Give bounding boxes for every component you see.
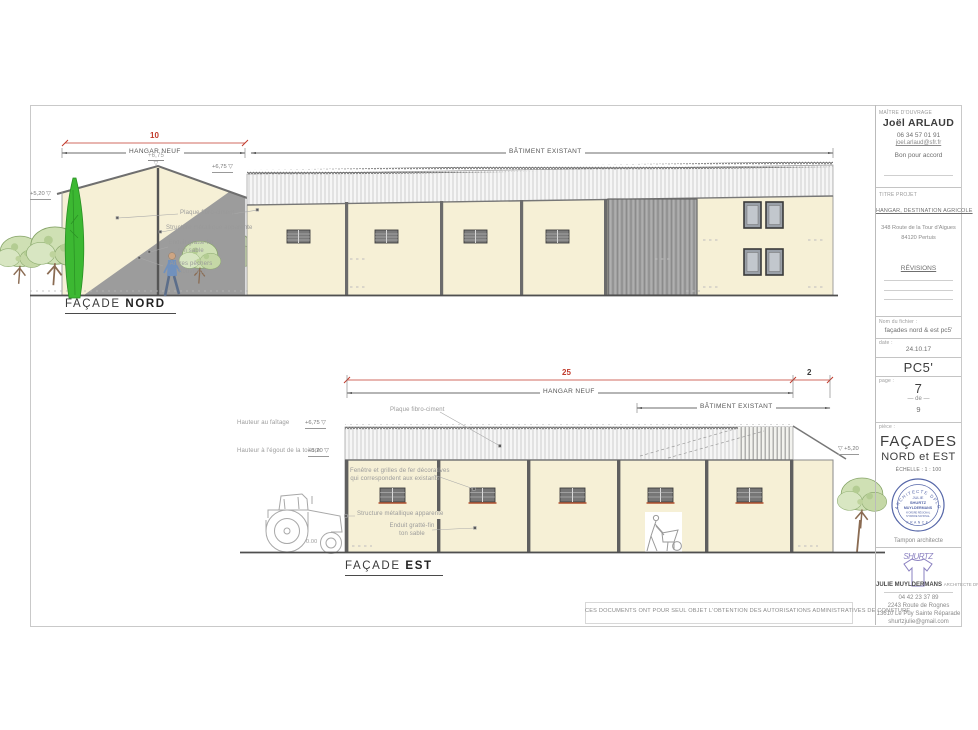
level-symbol: ▽ bbox=[324, 448, 328, 454]
stamp-line-2: SHURTZ bbox=[910, 500, 927, 505]
accord-label: Bon pour accord bbox=[876, 152, 961, 160]
facade-nord-title: FAÇADE NORD bbox=[65, 297, 176, 314]
level-right-est: ▽ +5,20 bbox=[838, 446, 859, 455]
maitre-ouvrage-label: MAÎTRE D'OUVRAGE bbox=[876, 110, 964, 116]
piece-title-1: FAÇADES bbox=[876, 433, 961, 452]
client-email: joel.arlaud@sfr.fr bbox=[876, 140, 961, 148]
batiment-existant-nord bbox=[247, 161, 833, 295]
fichier-value: façades nord & est pc5' bbox=[876, 327, 961, 335]
dim-25: 25 bbox=[560, 368, 573, 378]
signature-line bbox=[884, 175, 953, 176]
project-address-1: 348 Route de la Tour d'Aigues bbox=[876, 225, 961, 232]
level-symbol: ▽ bbox=[228, 164, 232, 170]
note-plaque-est: Plaque fibro-ciment bbox=[390, 407, 445, 415]
revisions-label: RÉVISIONS bbox=[876, 265, 961, 273]
note-enduit-nord: Enduit gratté-finton sable bbox=[160, 240, 222, 255]
echelle: ÉCHELLE : 1 : 100 bbox=[876, 467, 961, 473]
date-value: 24.10.17 bbox=[876, 346, 961, 354]
architect-phone: 04 42 23 37 89 bbox=[876, 595, 961, 603]
project-title: HANGAR, DESTINATION AGRICOLE bbox=[876, 208, 961, 215]
level-left-nord: +5,20 ▽ bbox=[30, 191, 51, 200]
level-symbol: ▽ bbox=[321, 420, 325, 426]
metal-slat-door bbox=[608, 199, 697, 295]
architect-address-2: 13610 Le Puy Sainte Réparade bbox=[876, 611, 961, 619]
architect-email: shurtzjulie@gmail.com bbox=[876, 619, 961, 627]
drawing-sheet: 10 HANGAR NEUF BÂTIMENT EXISTANT +6,75 ▽… bbox=[0, 0, 978, 730]
stamp-arc-bottom: FRANCE bbox=[907, 521, 930, 525]
note-arbres-nord: Arbres pêchers(nouveau) bbox=[160, 261, 222, 276]
stamp-line-3: MUYLDERMANS bbox=[904, 506, 933, 510]
facade-nord-drawing bbox=[0, 140, 838, 298]
page-total: 9 bbox=[876, 405, 961, 414]
architect-stamp: ARCHITECTE DPLG JULIE SHURTZ MUYLDERMANS… bbox=[876, 475, 961, 537]
dim-batiment-existant-nord: BÂTIMENT EXISTANT bbox=[506, 148, 585, 156]
note-structure-nord: Structure métallique apparente bbox=[166, 225, 253, 233]
page-de: — de — bbox=[876, 396, 961, 404]
note-structure-est: Structure métallique apparente bbox=[355, 511, 446, 519]
label-faitage: Hauteur au faîtage bbox=[237, 420, 289, 428]
tractor bbox=[266, 494, 342, 554]
stamp-line-5: N°ORDRE NATIONAL bbox=[906, 515, 930, 518]
note-enduit-est: Enduit gratté-finton sable bbox=[382, 523, 442, 538]
tampon-caption: Tampon architecte bbox=[876, 538, 961, 546]
note-plaque-nord: Plaque fibro-ciment bbox=[180, 210, 235, 218]
client-name: Joël ARLAUD bbox=[876, 117, 961, 130]
project-address-2: 84120 Pertuis bbox=[876, 235, 961, 242]
piece-title-2: NORD et EST bbox=[876, 451, 961, 465]
est-roof-band bbox=[345, 427, 793, 460]
title-block: MAÎTRE D'OUVRAGE Joël ARLAUD 06 34 57 01… bbox=[875, 105, 961, 625]
architect-name-row: JULIE MUYLDERMANS ARCHITECTE DPLG bbox=[876, 582, 961, 590]
dim-2: 2 bbox=[805, 368, 813, 378]
level-ground: 0.00 bbox=[306, 539, 317, 546]
dim-hangar-neuf-est: HANGAR NEUF bbox=[540, 388, 598, 396]
dim-batiment-existant-est: BÂTIMENT EXISTANT bbox=[697, 403, 776, 411]
dim-10: 10 bbox=[148, 131, 161, 141]
existing-roof-hatch bbox=[738, 427, 793, 460]
doc-code: PC5' bbox=[876, 360, 961, 376]
logo-text: SHURTZ bbox=[903, 552, 934, 561]
person-wheelbarrow bbox=[645, 512, 682, 552]
note-fenetre-est: Fenêtre et grilles de fer décorativesqui… bbox=[350, 468, 440, 483]
facade-est-title: FAÇADE EST bbox=[345, 559, 443, 576]
level-eave-nord: +6,75 ▽ bbox=[212, 164, 233, 173]
level-symbol: ▽ bbox=[46, 191, 50, 197]
level-egout: +5,20 ▽ bbox=[308, 448, 329, 457]
level-faitage: +6,75 ▽ bbox=[305, 420, 326, 429]
fichier-label: Nom du fichier : bbox=[876, 319, 964, 325]
level-symbol: ▽ bbox=[154, 161, 159, 167]
titre-projet-label: TITRE PROJET bbox=[876, 192, 964, 198]
level-ridge-nord: +6,75 ▽ bbox=[140, 153, 172, 168]
facade-est-drawing bbox=[240, 375, 887, 554]
page-number: 7 bbox=[876, 381, 961, 397]
architect-address-1: 2243 Route de Rognes bbox=[876, 603, 961, 611]
footer-note: CES DOCUMENTS ONT POUR SEUL OBJET L'OBTE… bbox=[585, 608, 851, 615]
level-symbol: ▽ bbox=[838, 446, 842, 452]
client-phone: 06 34 57 01 91 bbox=[876, 132, 961, 140]
piece-label: pièce : bbox=[876, 424, 964, 430]
